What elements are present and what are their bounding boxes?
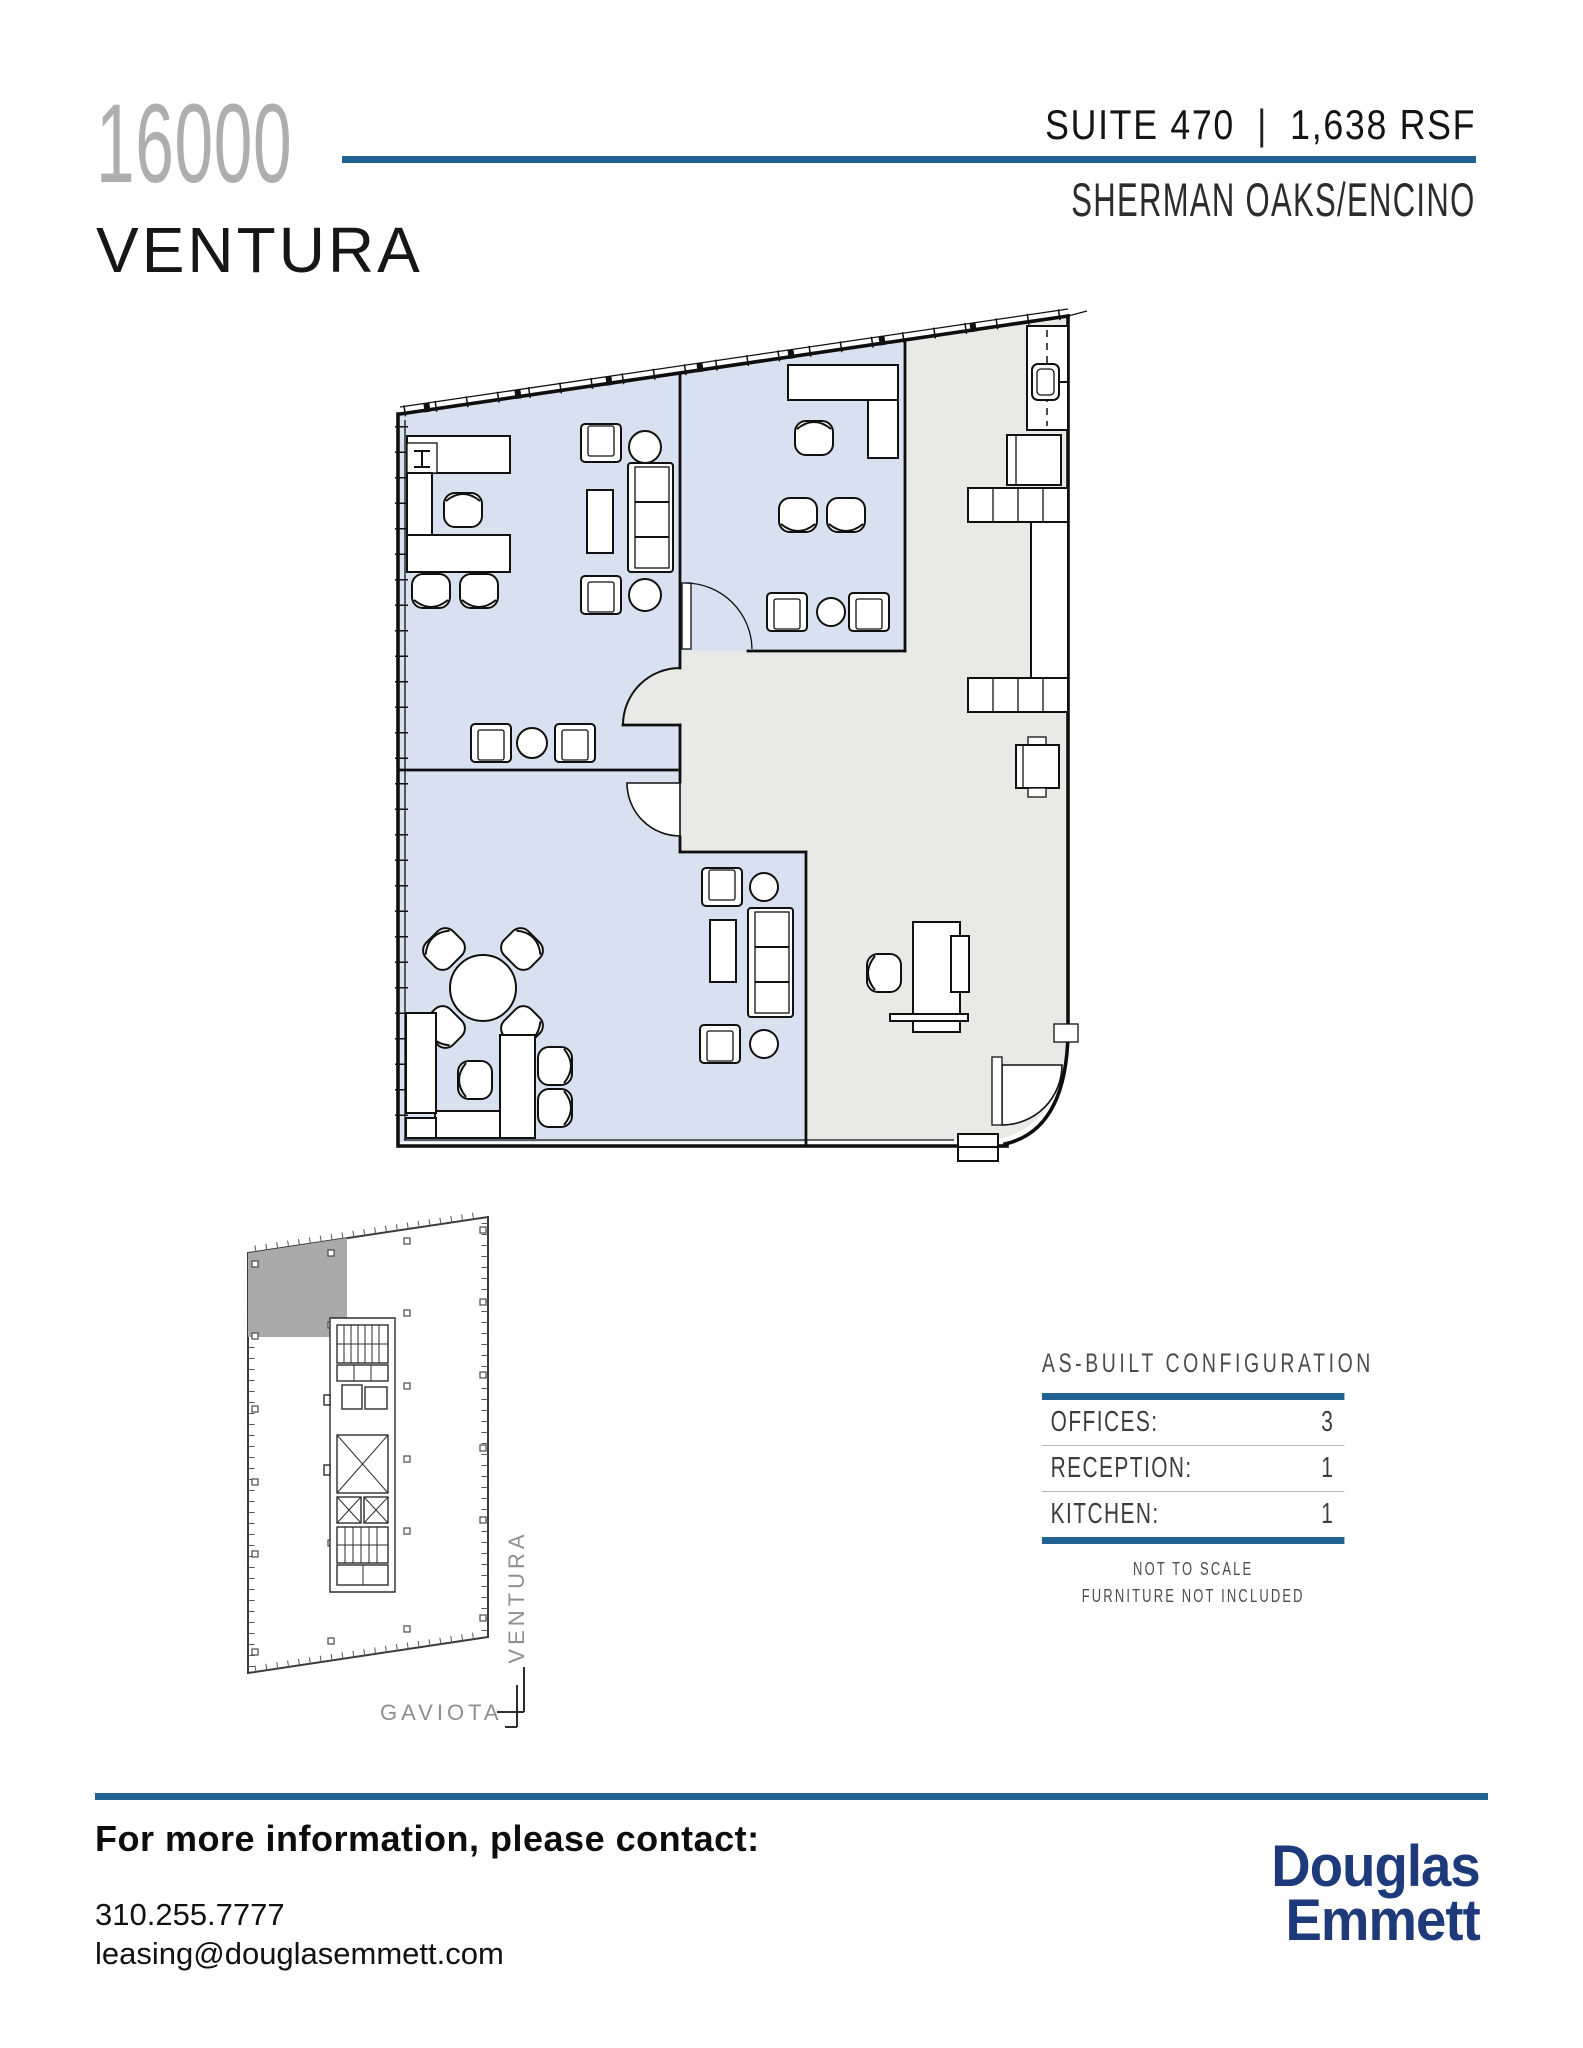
entry-door-frame — [958, 1134, 998, 1161]
as-built-title: AS-BUILT CONFIGURATION — [1042, 1348, 1344, 1393]
title-divider: | — [1235, 101, 1290, 148]
entry-door-swing — [1002, 1065, 1062, 1125]
as-built-row-label: OFFICES: — [1051, 1406, 1159, 1439]
as-built-row: OFFICES:3 — [1042, 1400, 1344, 1445]
as-built-notes: NOT TO SCALEFURNITURE NOT INCLUDED — [1042, 1544, 1344, 1610]
building-core — [324, 1318, 395, 1592]
as-built-note: FURNITURE NOT INCLUDED — [1042, 1583, 1344, 1610]
flyer-page: { "colors": { "accent": "#20618f", "room… — [0, 0, 1583, 2048]
street-label-gaviota: GAVIOTA — [380, 1700, 503, 1725]
header-rule — [342, 156, 1476, 163]
office2-door-leaf — [682, 583, 691, 649]
footer-rule — [95, 1793, 1488, 1800]
contact-heading: For more information, please contact: — [95, 1818, 760, 1860]
as-built-panel: AS-BUILT CONFIGURATION OFFICES:3RECEPTIO… — [1042, 1348, 1344, 1610]
brand-line-1: Douglas — [1271, 1840, 1480, 1894]
building-number: 16000 — [96, 88, 292, 200]
suite-size: 1,638 RSF — [1290, 101, 1476, 148]
as-built-row-value: 1 — [1321, 1498, 1334, 1531]
brand-logo: Douglas Emmett — [1271, 1840, 1480, 1948]
floor-plan — [380, 280, 1090, 1170]
as-built-rows: OFFICES:3RECEPTION:1KITCHEN:1 — [1042, 1400, 1344, 1537]
as-built-row: RECEPTION:1 — [1042, 1446, 1344, 1491]
as-built-row: KITCHEN:1 — [1042, 1492, 1344, 1537]
as-built-note: NOT TO SCALE — [1042, 1556, 1344, 1583]
as-built-row-value: 1 — [1321, 1452, 1334, 1485]
submarket-label: SHERMAN OAKS/ENCINO — [1072, 172, 1476, 227]
contact-email: leasing@douglasemmett.com — [95, 1936, 504, 1972]
suite-title: SUITE 470|1,638 RSF — [1045, 101, 1476, 149]
entry-door-leaf — [992, 1057, 1002, 1125]
as-built-row-label: RECEPTION: — [1051, 1452, 1193, 1485]
site-plan: VENTURA GAVIOTA — [225, 1205, 565, 1745]
as-built-row-label: KITCHEN: — [1051, 1498, 1160, 1531]
as-built-row-value: 3 — [1321, 1406, 1334, 1439]
suite-label: SUITE 470 — [1045, 101, 1235, 148]
as-built-top-rule — [1042, 1393, 1344, 1400]
street-label-ventura: VENTURA — [504, 1530, 529, 1663]
as-built-bottom-rule — [1042, 1537, 1344, 1544]
brand-line-2: Emmett — [1271, 1894, 1480, 1948]
contact-phone: 310.255.7777 — [95, 1897, 285, 1933]
building-name: VENTURA — [96, 218, 423, 282]
